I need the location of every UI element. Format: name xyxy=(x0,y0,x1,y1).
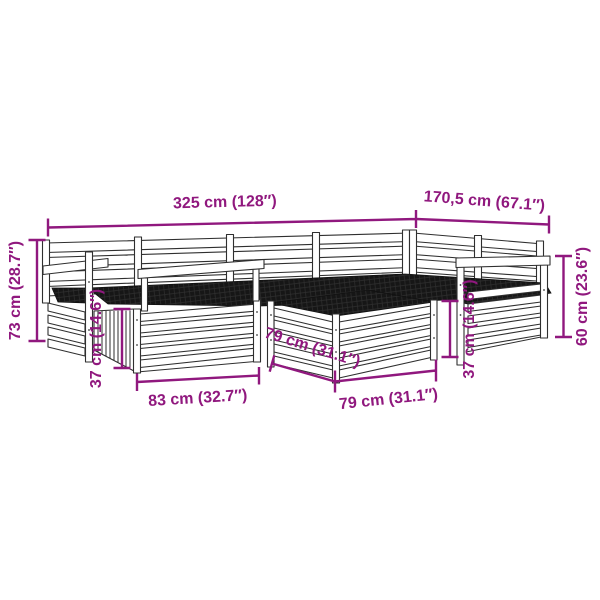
product-image: 325 cm (128″) 170,5 cm (67.1″) 73 cm (28… xyxy=(0,0,600,600)
dimension-label-total-height-left: 73 cm (28.7″) xyxy=(7,241,24,340)
product-dimension-diagram: 325 cm (128″) 170,5 cm (67.1″) 73 cm (28… xyxy=(0,0,600,600)
dimension-label-back-width-right: 170,5 cm (67.1″) xyxy=(423,188,545,214)
dimension-seat-width-front: 83 cm (32.7″) xyxy=(137,367,259,410)
dimension-label-table-height: 37 cm (14.6″) xyxy=(461,279,478,378)
dimension-total-height-left: 73 cm (28.7″) xyxy=(7,240,46,341)
dimension-label-right-height: 60 cm (23.6″) xyxy=(574,247,591,346)
dimension-back-width-right: 170,5 cm (67.1″) xyxy=(416,188,549,233)
dimension-label-back-width-left: 325 cm (128″) xyxy=(173,193,277,213)
dimension-label-seat-width-front: 83 cm (32.7″) xyxy=(148,387,248,410)
dimension-back-width-left: 325 cm (128″) xyxy=(48,193,416,237)
dimension-label-base-height-left: 37 cm (14.6″) xyxy=(88,289,105,388)
dimension-right-height: 60 cm (23.6″) xyxy=(555,247,591,346)
dimension-label-table-width: 79 cm (31.1″) xyxy=(338,386,439,413)
